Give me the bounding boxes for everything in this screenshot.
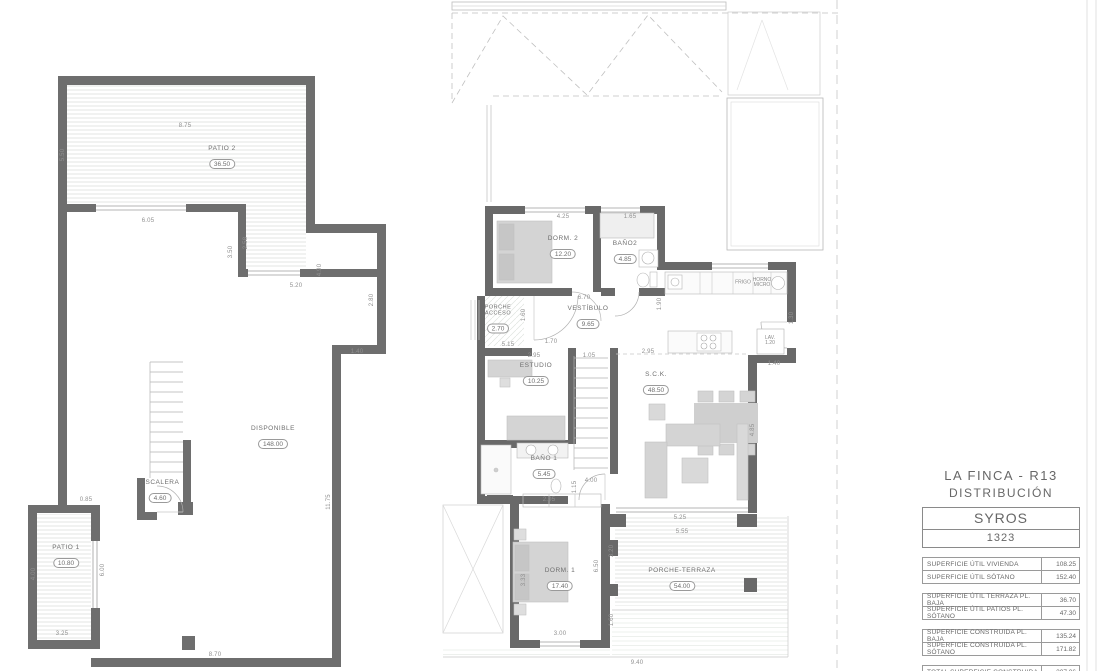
table-row: SUPERFICIE ÚTIL PATIOS PL. SÓTANO 47.30	[922, 607, 1080, 620]
dimension-label: 2.95	[642, 349, 654, 355]
dimension-label: 2.05	[543, 497, 555, 503]
dimension-label: 1.90	[657, 298, 663, 310]
dimension-label: 1.60	[609, 614, 615, 626]
dimension-label: 5.25	[674, 515, 686, 521]
dimension-label: 4.00	[585, 478, 597, 484]
table-row: SUPERFICIE CONSTRUIDA PL. BAJA 135.24	[922, 629, 1080, 643]
dimension-label: 5.50	[60, 149, 66, 161]
room-label-dorm-1: DORM. 1 17.40	[545, 567, 576, 593]
dimension-label: 8.75	[179, 123, 191, 129]
dimension-label: 3.33	[521, 574, 527, 586]
dimension-label: 6.05	[142, 218, 154, 224]
dimension-label: 1.40	[768, 361, 780, 367]
dimension-label: 3.50	[228, 246, 234, 258]
table-row: SUPERFICIE ÚTIL SÓTANO 152.40	[922, 571, 1080, 584]
dimension-label: 4.85	[750, 424, 756, 436]
model-name: SYROS	[922, 507, 1080, 530]
dimension-label: 4.25	[557, 214, 569, 220]
table-row: TOTAL SUPERFICIE CONSTRUIDA 307.06	[922, 665, 1080, 671]
dimension-label: 8.70	[209, 652, 221, 658]
dimension-label: 1.40	[351, 349, 363, 355]
room-label-patio-1: PATIO 1 10.80	[52, 544, 79, 570]
dimension-label: 0.85	[80, 497, 92, 503]
dimension-label: 6.70	[578, 295, 590, 301]
room-label-escalera: ESCALERA 4.60	[141, 479, 180, 505]
dimension-label: 1.70	[545, 339, 557, 345]
project-title: LA FINCA - R13	[922, 468, 1080, 483]
overhang-x-area	[443, 505, 503, 633]
plot-number: 1323	[922, 530, 1080, 548]
table-row: SUPERFICIE ÚTIL VIVIENDA 108.25	[922, 557, 1080, 571]
dimension-label: 6.00	[100, 564, 106, 576]
dimension-label: 3.00	[554, 631, 566, 637]
room-label-patio-2: PATIO 2 36.50	[208, 145, 235, 171]
title-block: LA FINCA - R13 DISTRIBUCIÓN SYROS 1323 S…	[922, 468, 1080, 671]
dimension-label: 5.20	[290, 283, 302, 289]
dimension-label: 2.58	[243, 237, 249, 249]
floorplan-sheet: PATIO 2 36.50 DISPONIBLE 148.00 ESCALERA…	[0, 0, 1101, 671]
room-label-disponible: DISPONIBLE 148.00	[251, 425, 295, 451]
surface-table-terraza-patios: SUPERFICIE ÚTIL TERRAZA PL. BAJA 36.70 S…	[922, 593, 1080, 620]
surface-table-total: TOTAL SUPERFICIE CONSTRUIDA 307.06	[922, 665, 1080, 671]
dimension-label: 2.95	[528, 353, 540, 359]
dimension-label: 1.05	[583, 353, 595, 359]
dimension-label: 5.15	[502, 342, 514, 348]
table-row: SUPERFICIE CONSTRUIDA PL. SÓTANO 171.82	[922, 643, 1080, 656]
room-label-porche-terraza: PORCHE-TERRAZA 54.00	[648, 567, 715, 593]
dimension-label: 11.75	[326, 494, 332, 510]
dimension-label: 9.40	[631, 660, 643, 666]
surface-table-construida: SUPERFICIE CONSTRUIDA PL. BAJA 135.24 SU…	[922, 629, 1080, 656]
dimension-label: 3.25	[56, 631, 68, 637]
baja-stairs	[574, 356, 608, 470]
dimension-label: 3.20	[609, 545, 615, 557]
room-label-porche-acceso: PORCHE ACCESO 2.70	[481, 305, 515, 336]
dimension-label: 1.60	[521, 309, 527, 321]
dimension-label: 2.80	[369, 294, 375, 306]
dimension-label: 4.90	[317, 264, 323, 276]
dimension-label: 1.15	[572, 481, 578, 493]
table-row: SUPERFICIE ÚTIL TERRAZA PL. BAJA 36.70	[922, 593, 1080, 607]
room-label-dorm-2: DORM. 2 12.20	[548, 235, 579, 261]
dimension-label: 4.00	[31, 568, 37, 580]
dimension-label: 6.50	[594, 560, 600, 572]
project-subtitle: DISTRIBUCIÓN	[922, 486, 1080, 500]
room-label-estudio: ESTUDIO 10.25	[520, 362, 552, 388]
room-label-bano-2: BAÑO2 4.85	[613, 240, 638, 266]
room-label-bano-1: BAÑO 1 5.45	[531, 455, 558, 481]
sheet-border-lines	[1087, 0, 1096, 671]
dimension-label: 1.65	[624, 214, 636, 220]
dimension-label: 5.55	[676, 529, 688, 535]
fixture-label-horno-micro: HORNO MICRO	[752, 278, 772, 288]
fixture-label-frigo: FRIGO	[733, 281, 753, 286]
room-label-sck: S.C.K. 48.50	[643, 371, 669, 397]
fixture-label-lav: LAV. 1.20	[762, 336, 778, 346]
dimension-label: 1.30	[789, 312, 795, 324]
room-label-vestibulo: VESTÍBULO 9.65	[568, 305, 609, 331]
surface-table-util: SUPERFICIE ÚTIL VIVIENDA 108.25 SUPERFIC…	[922, 557, 1080, 584]
